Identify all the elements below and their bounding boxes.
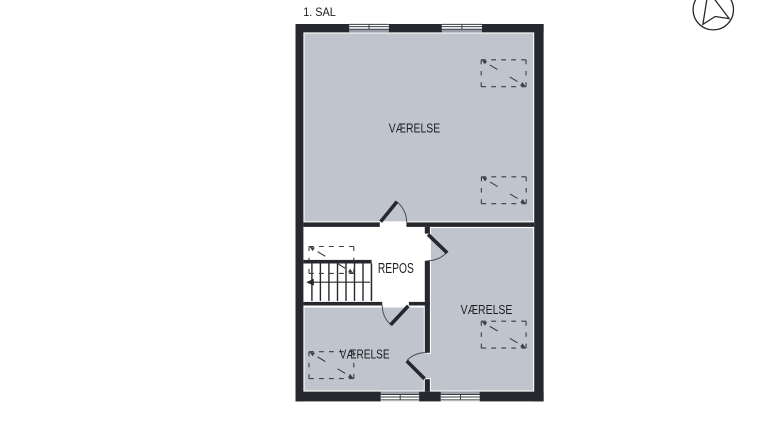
svg-text:VÆRELSE: VÆRELSE xyxy=(340,346,390,361)
svg-text:1. SAL: 1. SAL xyxy=(303,5,336,19)
svg-text:VÆRELSE: VÆRELSE xyxy=(461,302,513,317)
svg-text:VÆRELSE: VÆRELSE xyxy=(389,120,441,135)
svg-text:REPOS: REPOS xyxy=(378,261,414,277)
